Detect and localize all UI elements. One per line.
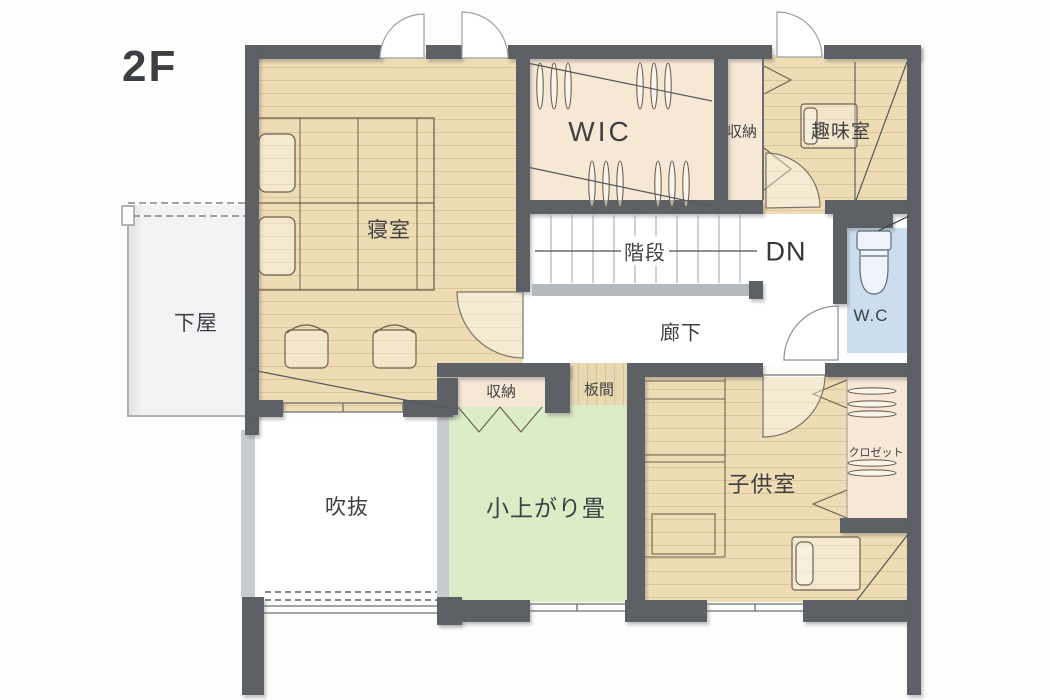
door-arcs <box>380 12 838 437</box>
floor-title: 2F <box>122 42 177 92</box>
wc-window-line <box>878 216 909 231</box>
label-dn: DN <box>766 237 807 268</box>
door-arc <box>462 12 508 58</box>
door-arc <box>784 306 838 360</box>
label-kids: 子供室 <box>727 467 796 499</box>
folding-door-icon <box>458 407 542 432</box>
label-tatami: 小上がり畳 <box>486 489 606 523</box>
sloped-ceiling-line <box>857 533 909 600</box>
void-edge-dashed-line <box>265 592 437 600</box>
toilet-icon <box>857 231 891 294</box>
door-arc <box>380 14 424 58</box>
label-wc: W.C <box>853 306 888 326</box>
floor-plan: 2F 下屋 寝室 WIC 収納 趣味室 階段 DN 廊下 W.C 収納 板間 吹… <box>0 0 1050 700</box>
bed-icon <box>792 537 860 590</box>
door-arc <box>766 153 820 208</box>
label-bedroom: 寝室 <box>367 214 411 244</box>
hanger-icons <box>848 388 896 476</box>
label-hobby: 趣味室 <box>811 117 871 144</box>
label-closet: クロゼット <box>849 444 904 460</box>
label-storage-bottom: 収納 <box>486 381 516 402</box>
shitaya-dashed-line <box>128 203 246 216</box>
label-itanoma: 板間 <box>584 379 614 400</box>
door-arc <box>457 292 523 358</box>
label-storage-top: 収納 <box>727 121 757 142</box>
door-arc <box>763 375 825 437</box>
door-arc <box>777 12 822 57</box>
bed-icon <box>252 118 434 290</box>
label-corridor: 廊下 <box>660 317 702 346</box>
label-wic: WIC <box>568 116 631 148</box>
plan-linework <box>0 0 1050 700</box>
shitaya-corner-post <box>122 206 134 225</box>
desk-icon <box>645 378 725 557</box>
label-void: 吹抜 <box>325 491 369 521</box>
floor-chair-icon <box>285 325 416 368</box>
label-stairs: 階段 <box>621 237 669 266</box>
label-shitaya: 下屋 <box>174 307 218 337</box>
